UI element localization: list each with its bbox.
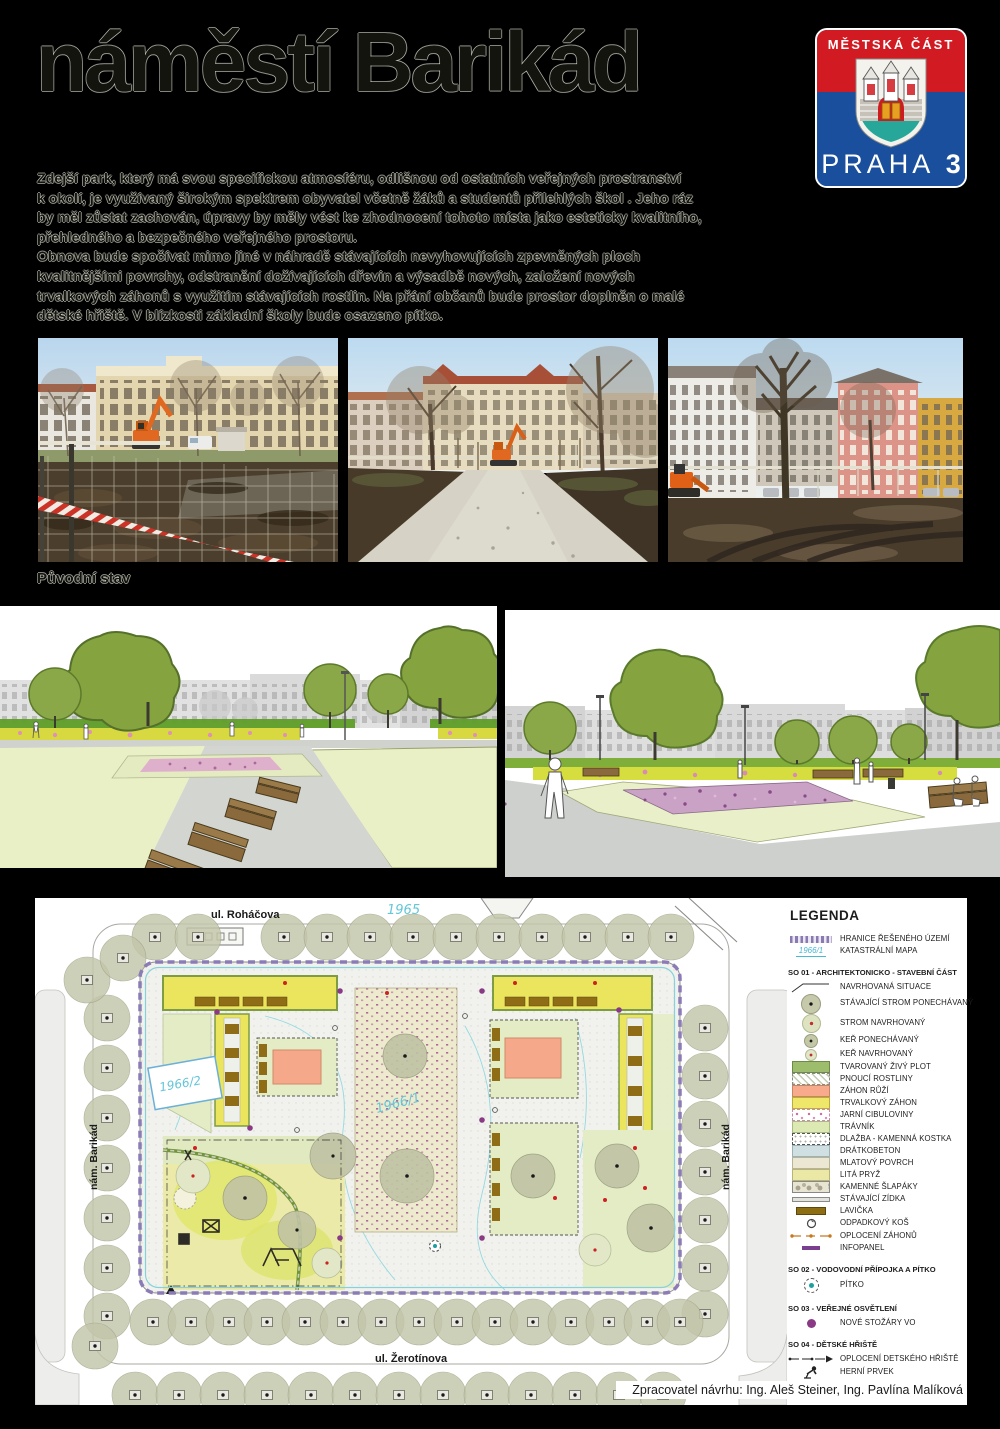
legend-item: STROM NAVRHOVANÝ [788,1014,965,1033]
legend-item-label: PNOUCÍ ROSTLINY [840,1075,965,1083]
street-label-left: nám. Barikád [88,1124,100,1190]
render-visualization-1 [0,606,497,873]
leader-line-icon [788,981,834,993]
legend-item-label: ODPADKOVÝ KOŠ [840,1219,965,1227]
legend-item-label: JARNÍ CIBULOVINY [840,1111,965,1119]
cadastre-line-icon: 1966/1 [788,946,834,957]
swatch-steppers-icon [788,1181,834,1193]
legend-item: NOVÉ STOŽÁRY VO [788,1317,965,1329]
legend-item-label: STROM NAVRHOVANÝ [840,1019,965,1027]
legend-item-label: HRANICE ŘEŠENÉHO ÚZEMÍ [840,935,965,943]
photo-original-state-1 [38,338,338,562]
logo-praha-label: PRAHA 3 [817,149,965,180]
legend-item-label: DRÁTKOBETON [840,1147,965,1155]
bed-fence-line-icon [788,1232,834,1240]
legend-item: MLATOVÝ POVRCH [788,1157,965,1169]
parcel-label-north: 1965 [387,903,420,918]
legend-item-label: NAVRHOVANÁ SITUACE [840,983,965,991]
legend-section-heading: SO 04 - DĚTSKÉ HŘIŠTĚ [788,1340,965,1349]
street-label-right: nám. Barikád [720,1124,732,1190]
site-plan-drawing: 1966/1 [35,898,787,1405]
legend-item: TRVALKOVÝ ZÁHON [788,1097,965,1109]
swatch-concrete-icon [788,1145,834,1157]
lawn-bottom-right [579,1130,675,1288]
shrub-proposed-icon [788,1049,834,1061]
intro-line: Zdejší park, který má svou specifickou a… [37,170,702,190]
poster-page: náměstí Barikád MĚSTSKÁ ČÁST [0,0,1000,1429]
legend-item: TRÁVNÍK [788,1121,965,1133]
swatch-gravel-icon [788,1157,834,1169]
street-label-bottom: ul. Žerotínova [375,1352,448,1365]
legend-item-label: OPLOCENÍ ZÁHONŮ [840,1232,965,1240]
lawn-panel-lower-right [490,1123,578,1235]
legend-item: JARNÍ CIBULOVINY [788,1109,965,1121]
legend-item: DLAŽBA - KAMENNÁ KOSTKA [788,1133,965,1145]
bin-glyph-icon [788,1217,834,1230]
intro-line: Obnova bude spočívat mimo jiné v náhradě… [37,248,702,268]
drinking-fountain-marker [430,1241,441,1252]
swatch-perennials-icon [788,1097,834,1109]
intro-line: přehledného a bezpečného veřejného prost… [37,229,702,249]
legend-item-label: PÍTKO [840,1281,965,1289]
bulb-bed-central: 1966/1 [355,988,457,1232]
intro-line: dětské hřiště. V blízkosti základní škol… [37,307,702,327]
legend-item: HERNÍ PRVEK [788,1365,965,1380]
legend-section-heading: SO 01 - ARCHITEKTONICKO - STAVEBNÍ ČÁST [788,968,965,977]
photo-original-state-2 [348,338,658,562]
legend-item-label: ZÁHON RŮŽÍ [840,1087,965,1095]
legend-section-heading: SO 03 - VEŘEJNÉ OSVĚTLENÍ [788,1304,965,1313]
legend-item: INFOPANEL [788,1242,965,1254]
legend-item-label: KAMENNÉ ŠLAPÁKY [840,1183,965,1191]
legend-item-label: TRÁVNÍK [840,1123,965,1131]
legend-item: STÁVAJÍCÍ ZÍDKA [788,1193,965,1205]
swatch-roses-icon [788,1085,834,1097]
intro-line: k okolí, je využívaný širokým spektrem o… [37,190,702,210]
swatch-climbers-icon [788,1073,834,1085]
praha3-logo: MĚSTSKÁ ČÁST PRAHA 3 [815,28,967,188]
legend-item-label: NOVÉ STOŽÁRY VO [840,1319,965,1327]
page-title: náměstí Barikád [36,14,640,111]
legend-item-label: INFOPANEL [840,1244,965,1252]
legend-item-label: OPLOCENÍ DETSKÉHO HŘIŠTĚ [840,1355,965,1363]
tree-proposed-icon [788,1014,834,1033]
site-plan-sheet: 1966/1 [35,898,967,1405]
legend-item: STÁVAJÍCÍ STROM PONECHÁVANÝ [788,993,965,1014]
legend-item: ODPADKOVÝ KOŠ [788,1217,965,1230]
intro-line: kvalitnějšími povrchy, odstranění dožíva… [37,268,702,288]
legend-item-label: HERNÍ PRVEK [840,1368,965,1376]
legend-item-label: DLAŽBA - KAMENNÁ KOSTKA [840,1135,965,1143]
legend-item: PÍTKO [788,1278,965,1293]
playground-area [163,1133,356,1294]
legend-item: ZÁHON RŮŽÍ [788,1085,965,1097]
swatch-lawn-icon [788,1121,834,1133]
photo-original-state-3 [668,338,963,562]
legend-item: LAVIČKA [788,1205,965,1217]
logo-district-label: MĚSTSKÁ ČÁST [817,37,965,52]
legend-section-heading: SO 02 - VODOVODNÍ PŘÍPOJKA A PÍTKO [788,1265,965,1274]
legend-item-label: STÁVAJÍCÍ STROM PONECHÁVANÝ [840,999,973,1007]
intro-line: by měl zůstat zachován, úpravy by měly v… [37,209,702,229]
infopanel-bar-icon [788,1246,834,1250]
legend-item: LITÁ PRYŽ [788,1169,965,1181]
legend-item: KEŘ NAVRHOVANÝ [788,1048,965,1061]
render-visualization-2 [505,610,1000,882]
legend-item: OPLOCENÍ DETSKÉHO HŘIŠTĚ [788,1353,965,1365]
author-credit: Zpracovatel návrhu: Ing. Aleš Steiner, I… [616,1381,967,1399]
legend-item-label: TRVALKOVÝ ZÁHON [840,1099,965,1107]
legend-item: KEŘ PONECHÁVANÝ [788,1033,965,1048]
legend-item-label: KEŘ PONECHÁVANÝ [840,1036,965,1044]
shrub-existing-icon [788,1034,834,1048]
praha3-coat-of-arms-icon [852,57,930,149]
legend-item-label: KEŘ NAVRHOVANÝ [840,1050,965,1058]
legend-item: NAVRHOVANÁ SITUACE [788,981,965,993]
legend-item-label: MLATOVÝ POVRCH [840,1159,965,1167]
swatch-hedge-icon [788,1061,834,1073]
intro-line: trvalkových záhonů s využitím stávajícíc… [37,288,702,308]
legend-item: OPLOCENÍ ZÁHONŮ [788,1230,965,1242]
legend-item-label: LITÁ PRYŽ [840,1171,965,1179]
legend-item: DRÁTKOBETON [788,1145,965,1157]
wall-line-icon [788,1197,834,1202]
swatch-bulbs-icon [788,1109,834,1121]
tree-existing-icon [788,994,834,1014]
legend-item: PNOUCÍ ROSTLINY [788,1073,965,1085]
playground-fence-line-icon [788,1354,834,1364]
legend-item-label: KATASTRÁLNÍ MAPA [840,947,965,955]
intro-paragraph: Zdejší park, který má svou specifickou a… [37,170,702,327]
legend-item: TVAROVANÝ ŽIVÝ PLOT [788,1061,965,1073]
legend-item: 1966/1KATASTRÁLNÍ MAPA [788,945,965,957]
fountain-glyph-icon [788,1278,834,1293]
street-label-top: ul. Roháčova [211,909,280,921]
legend-item-label: STÁVAJÍCÍ ZÍDKA [840,1195,965,1203]
legend-item: HRANICE ŘEŠENÉHO ÚZEMÍ [788,933,965,945]
swatch-rubber-icon [788,1169,834,1181]
boundary-dashes-icon [788,936,834,943]
legend-title: LEGENDA [790,908,965,923]
legend-item-label: TVAROVANÝ ŽIVÝ PLOT [840,1063,965,1071]
bench-bar-icon [788,1207,834,1215]
legend-item-label: LAVIČKA [840,1207,965,1215]
legend-panel: LEGENDA HRANICE ŘEŠENÉHO ÚZEMÍ1966/1KATA… [788,908,965,1380]
legend-item: KAMENNÉ ŠLAPÁKY [788,1181,965,1193]
photos-caption: Původní stav [37,570,130,587]
swatch-cobbles-icon [788,1133,834,1145]
play-equipment-glyph-icon [788,1365,834,1380]
lamp-dot-icon [788,1319,834,1328]
